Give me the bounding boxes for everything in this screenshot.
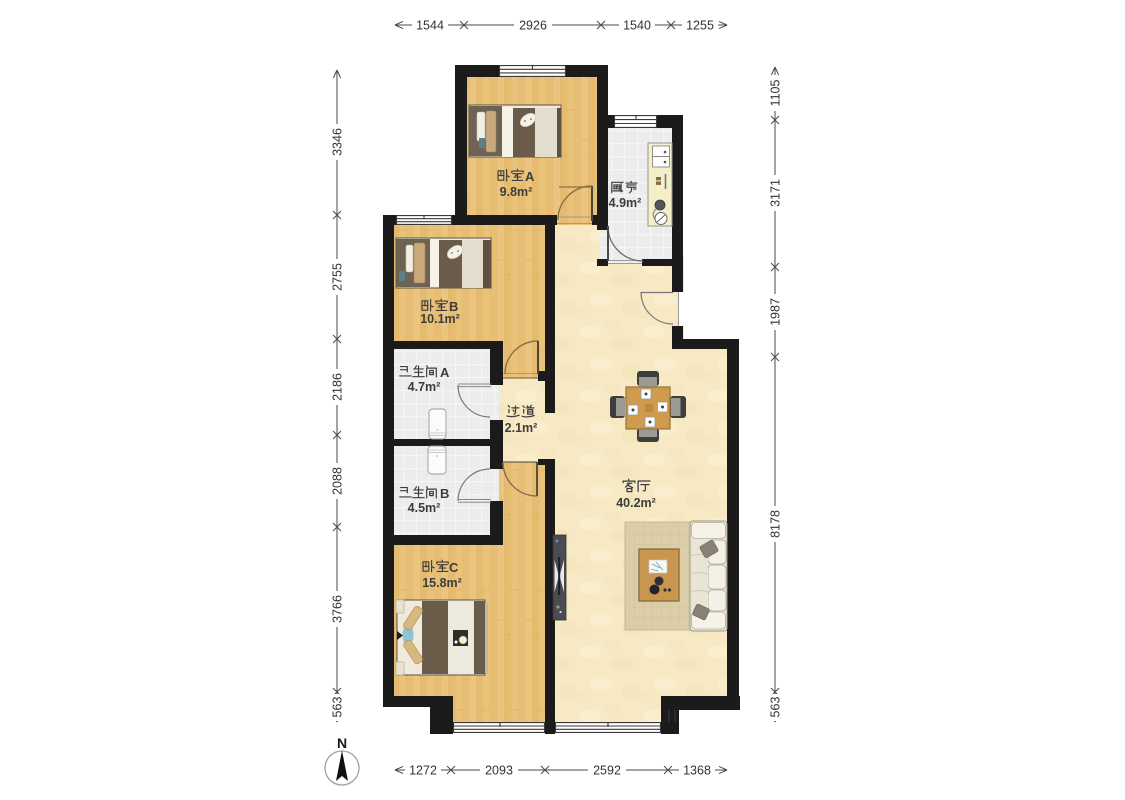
svg-text:40.2m²: 40.2m² xyxy=(616,496,656,510)
svg-text:563: 563 xyxy=(331,697,345,718)
svg-text:4.9m²: 4.9m² xyxy=(609,196,642,210)
svg-text:B: B xyxy=(440,486,449,501)
svg-text:1272: 1272 xyxy=(409,764,437,778)
svg-text:1368: 1368 xyxy=(683,764,711,778)
svg-text:1255: 1255 xyxy=(686,19,714,33)
svg-text:C: C xyxy=(449,560,459,575)
svg-text:10.1m²: 10.1m² xyxy=(420,312,460,326)
svg-text:563: 563 xyxy=(769,697,783,718)
svg-text:3171: 3171 xyxy=(769,179,783,207)
svg-text:1105: 1105 xyxy=(769,80,783,107)
svg-text:2926: 2926 xyxy=(519,19,547,33)
svg-text:4.5m²: 4.5m² xyxy=(408,501,441,515)
svg-text:2088: 2088 xyxy=(331,467,345,495)
svg-text:1544: 1544 xyxy=(416,19,444,33)
svg-text:3766: 3766 xyxy=(331,595,345,623)
svg-text:1540: 1540 xyxy=(623,19,651,33)
svg-text:8178: 8178 xyxy=(769,510,783,538)
svg-text:1987: 1987 xyxy=(769,298,783,326)
svg-text:9.8m²: 9.8m² xyxy=(500,185,533,199)
svg-text:3346: 3346 xyxy=(331,128,345,156)
svg-text:4.7m²: 4.7m² xyxy=(408,380,441,394)
svg-text:N: N xyxy=(337,735,347,751)
svg-text:A: A xyxy=(525,169,535,184)
svg-text:2186: 2186 xyxy=(331,373,345,401)
svg-text:2093: 2093 xyxy=(485,764,513,778)
svg-text:2592: 2592 xyxy=(593,764,621,778)
svg-text:A: A xyxy=(440,365,450,380)
svg-text:2755: 2755 xyxy=(331,263,345,291)
svg-text:15.8m²: 15.8m² xyxy=(422,576,462,590)
svg-text:2.1m²: 2.1m² xyxy=(505,421,538,435)
